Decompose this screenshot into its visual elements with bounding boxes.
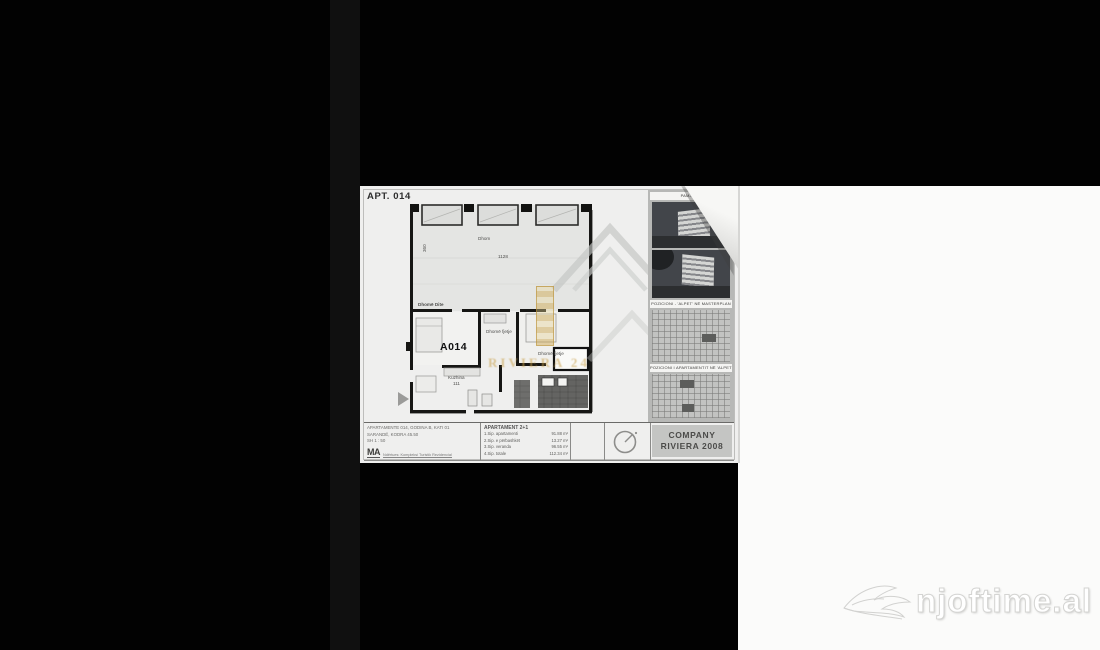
site-watermark: njoftime.al [840,578,1092,624]
kitchen-label: Kuzhina [448,375,465,380]
terrace-label: Dhom [478,236,490,241]
entry-arrow-icon [398,392,409,406]
architect-logo-caption: Ndërtues: Kompleksi Turistik Rezidencial [383,453,452,458]
architect-logo-row: MA Ndërtues: Kompleksi Turistik Rezidenc… [367,447,452,458]
company-name-line1: COMPANY [668,430,715,441]
title-block: APARTAMENTE 014, GODINA B, KATI 01 SARAN… [364,422,734,461]
keyplan-image [652,374,730,418]
letterbox-shade [330,0,360,650]
bird-logo-icon [840,578,914,624]
terrace-dim-vertical: 360 [422,244,427,252]
north-stamp-icon [612,427,640,455]
sidebar-caption-low: POZICIONI I APARTAMENTIT NË 'ALPET' [650,364,732,372]
photo-viewer-stage: njoftime.al APT. 014 [0,0,1100,650]
render-photo-2 [652,250,730,298]
gold-door-watermark-icon [536,286,554,346]
room-mid-label: Dhomë fjetje [486,329,512,334]
gold-brand-watermark: RIVIERA 24 [488,355,618,371]
floorplan-document[interactable]: APT. 014 [360,186,740,463]
kitchen-dim: 111 [453,381,460,386]
unit-code-label: A014 [440,341,467,353]
project-line-3: SH 1 : 50 [367,438,479,445]
project-line-1: APARTAMENTE 014, GODINA B, KATI 01 [367,425,479,432]
terrace-dim: 1128 [498,254,508,259]
project-line-2: SARANDË, KODRA 45.50 [367,432,479,439]
architect-logo: MA [367,447,380,458]
room-left-label: Dhomë Dite [418,302,444,307]
area-row: 4.Sip. totale 112.34 m² [484,451,568,458]
areas-table: APARTAMENT 2+1 1.Sip. apartamenti 91.88 … [484,425,568,457]
company-name-line2: RIVIERA 2008 [661,441,724,452]
sidebar-caption-mid: POZICIONI - 'ALPET' NË MASTERPLAN [650,300,732,308]
project-info: APARTAMENTE 014, GODINA B, KATI 01 SARAN… [367,425,479,445]
masterplan-image [652,310,730,362]
scanned-page-blank-area[interactable]: njoftime.al [738,186,1100,650]
site-watermark-text: njoftime.al [916,582,1092,620]
company-box: COMPANY RIVIERA 2008 [652,425,732,457]
